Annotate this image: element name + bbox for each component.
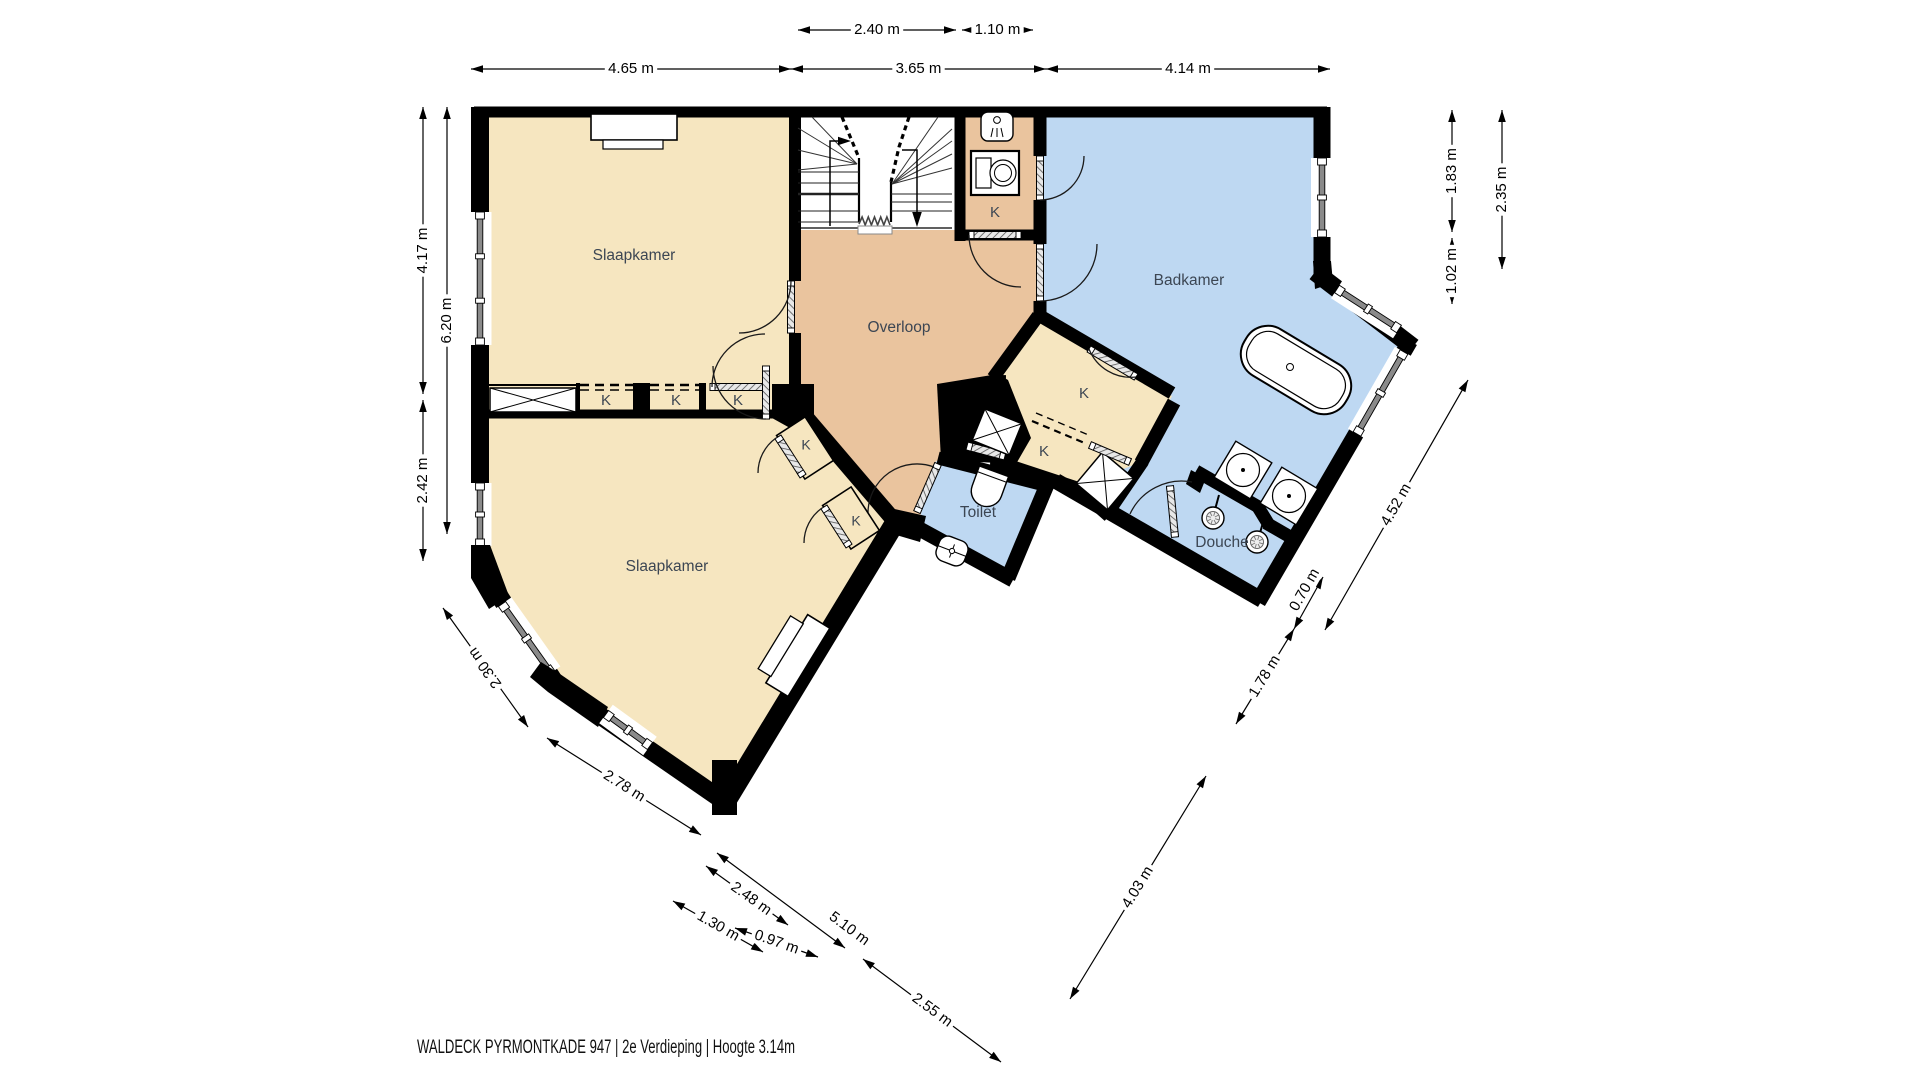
svg-text:3.65 m: 3.65 m	[896, 60, 942, 77]
svg-text:2.78 m: 2.78 m	[600, 767, 648, 806]
svg-text:Douche: Douche	[1195, 534, 1248, 551]
svg-text:1.02 m: 1.02 m	[1443, 248, 1460, 294]
svg-text:K: K	[733, 392, 743, 409]
svg-text:Toilet: Toilet	[960, 504, 997, 521]
svg-text:Slaapkamer: Slaapkamer	[626, 558, 709, 575]
svg-text:K: K	[601, 392, 611, 409]
svg-text:4.52 m: 4.52 m	[1377, 481, 1415, 529]
svg-text:2.35 m: 2.35 m	[1493, 167, 1510, 213]
svg-text:6.20 m: 6.20 m	[438, 298, 455, 344]
svg-text:0.70 m: 0.70 m	[1286, 566, 1323, 614]
svg-text:K: K	[801, 437, 811, 453]
svg-text:4.14 m: 4.14 m	[1165, 60, 1211, 77]
svg-text:K: K	[990, 204, 1000, 221]
svg-text:5.10 m: 5.10 m	[826, 908, 873, 949]
svg-text:K: K	[1039, 443, 1049, 460]
svg-text:2.42 m: 2.42 m	[414, 458, 431, 504]
svg-text:2.40 m: 2.40 m	[854, 21, 900, 38]
svg-text:K: K	[851, 513, 861, 529]
svg-text:2.30 m: 2.30 m	[465, 644, 505, 691]
svg-text:2.48 m: 2.48 m	[728, 878, 775, 919]
svg-text:Badkamer: Badkamer	[1154, 272, 1225, 289]
svg-text:WALDECK PYRMONTKADE 947 | 2e V: WALDECK PYRMONTKADE 947 | 2e Verdieping …	[417, 1036, 795, 1058]
svg-text:K: K	[1079, 385, 1089, 402]
svg-text:4.03 m: 4.03 m	[1118, 863, 1156, 911]
svg-text:1.10 m: 1.10 m	[975, 21, 1021, 38]
svg-text:Slaapkamer: Slaapkamer	[593, 247, 676, 264]
svg-text:2.55 m: 2.55 m	[909, 990, 956, 1031]
svg-text:Overloop: Overloop	[868, 319, 931, 336]
svg-text:0.97 m: 0.97 m	[752, 926, 801, 957]
svg-text:1.78 m: 1.78 m	[1245, 652, 1283, 700]
svg-text:4.17 m: 4.17 m	[414, 228, 431, 274]
svg-text:4.65 m: 4.65 m	[608, 60, 654, 77]
svg-text:K: K	[671, 392, 681, 409]
svg-text:1.83 m: 1.83 m	[1443, 148, 1460, 194]
svg-text:1.30 m: 1.30 m	[694, 907, 742, 944]
